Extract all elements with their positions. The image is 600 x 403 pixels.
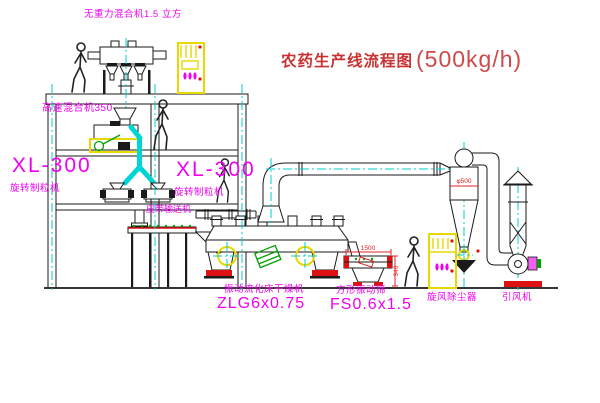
stack-cap — [505, 171, 531, 184]
label-granulator-left-name: 旋转制粒机 — [10, 184, 60, 194]
label-dryer-model: ZLG6x0.75 — [217, 296, 305, 312]
label-granulator-right-name: 旋转制粒机 — [174, 188, 224, 198]
label-sieve-model: FS0.6x1.5 — [330, 297, 412, 313]
label-belt-conveyor: 皮带输送机 — [146, 205, 191, 214]
pesticide-line-flow-diagram: 1500 340 φ500 农药生产线流程图 (500kg/h) 无重力混合机1… — [0, 0, 600, 403]
exhaust-stack-and-fan — [503, 167, 542, 290]
title-text: 农药生产线流程图 — [281, 49, 413, 71]
label-high-speed-mixer: 高速混合机350 — [42, 104, 113, 114]
granulator-left-drawing — [100, 183, 134, 202]
cyclone-diameter-dimension: φ500 — [456, 178, 471, 185]
fluid-bed-dryer-drawing — [204, 216, 348, 279]
label-gravity-mixer: 无重力混合机1.5 立方 — [84, 10, 182, 20]
fan-base — [504, 281, 542, 287]
belt-conveyor-drawing — [128, 225, 196, 287]
indicator-dot — [198, 77, 201, 80]
label-induced-draft-fan: 引风机 — [502, 293, 532, 303]
control-cabinet-top — [178, 43, 204, 93]
person-figure — [405, 237, 419, 286]
indicator-dot — [450, 239, 453, 242]
fan-motor-icon — [528, 257, 537, 270]
label-dryer-name: 振动流化床干燥机 — [224, 285, 304, 295]
indicator-dot — [198, 45, 201, 48]
diagram-title: 农药生产线流程图 (500kg/h) — [281, 46, 522, 73]
indicator-dot — [450, 269, 453, 272]
control-cabinet-ground — [429, 234, 456, 288]
granulator-right-drawing — [141, 183, 175, 202]
sieve-length-dimension: 1500 — [361, 245, 376, 252]
high-speed-mixer-drawing — [90, 108, 140, 152]
mixer-motor-icon — [95, 142, 104, 151]
cyclone-drawing — [450, 142, 480, 287]
label-granulator-right-model: XL-300 — [176, 159, 256, 180]
person-figure — [154, 100, 168, 149]
label-granulator-left-model: XL-300 — [12, 155, 92, 176]
fan-housing — [508, 254, 528, 274]
label-sieve-name: 方形振动筛 — [336, 286, 386, 296]
person-figure — [72, 43, 86, 92]
label-cyclone: 旋风除尘器 — [427, 293, 477, 303]
sieve-height-dimension: 340 — [393, 265, 400, 276]
title-capacity: (500kg/h) — [416, 46, 522, 73]
